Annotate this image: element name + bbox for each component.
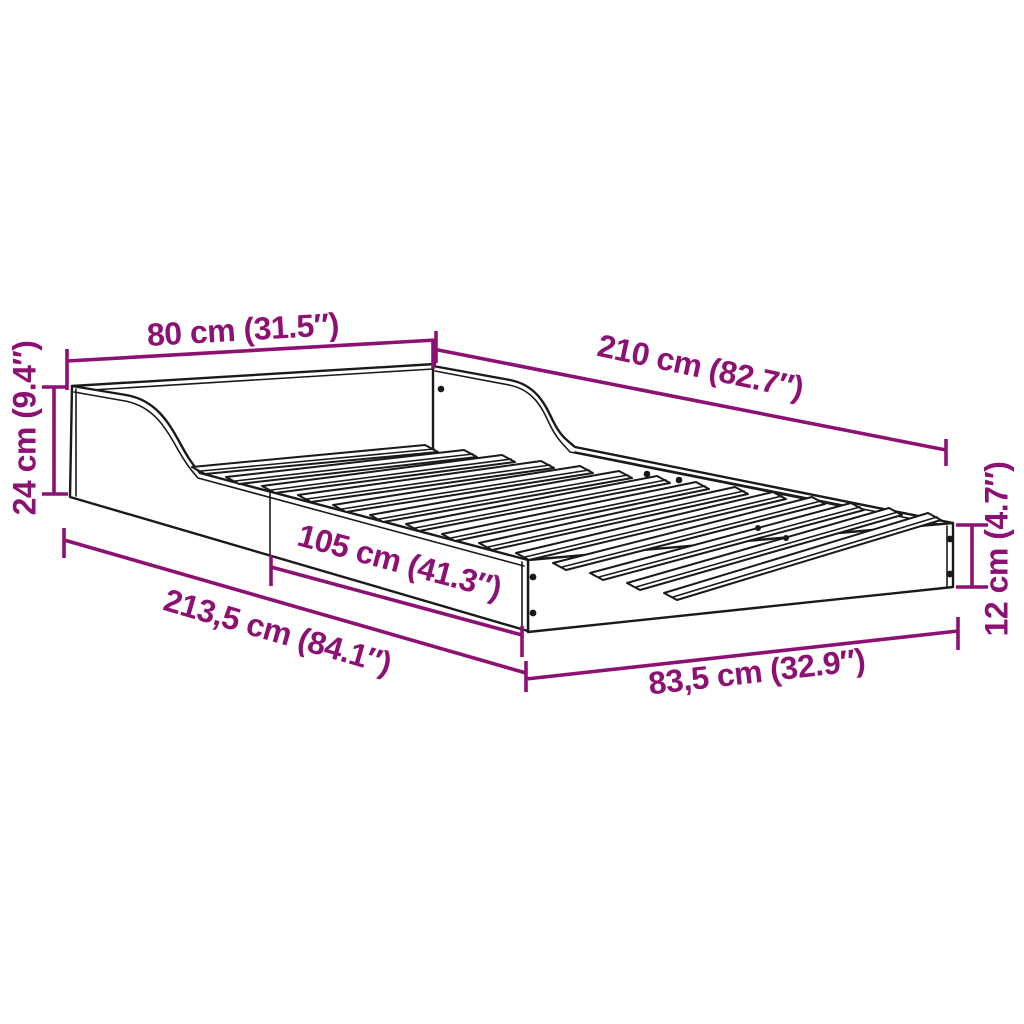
screw-dot — [783, 535, 789, 541]
bed-frame-dimension-diagram: 80 cm (31.5″) 210 cm (82.7″) 24 cm (9.4″… — [0, 0, 1024, 1024]
screw-dot — [530, 574, 537, 581]
dimension-width-top: 80 cm (31.5″) — [67, 306, 436, 390]
dimension-label-foot-width: 83,5 cm (32.9″) — [647, 641, 867, 701]
dimension-label-total-length: 213,5 cm (84.1″) — [160, 582, 396, 682]
screw-dot — [947, 536, 954, 543]
dimension-label-foot-height: 12 cm (4.7″) — [978, 462, 1014, 637]
dimension-foot-width: 83,5 cm (32.9″) — [526, 617, 958, 701]
screw-dot — [530, 610, 537, 617]
screw-dot — [438, 386, 445, 393]
screw-dot — [947, 571, 954, 578]
screw-dot — [755, 525, 761, 531]
dimension-length-top: 210 cm (82.7″) — [433, 327, 946, 466]
dimension-label-head-height: 24 cm (9.4″) — [6, 341, 42, 516]
dimension-foot-height: 12 cm (4.7″) — [956, 462, 1014, 637]
screw-dot — [644, 471, 651, 478]
screw-dot — [676, 477, 683, 484]
dimension-label-length-top: 210 cm (82.7″) — [594, 327, 806, 406]
diagram-canvas: 80 cm (31.5″) 210 cm (82.7″) 24 cm (9.4″… — [0, 0, 1024, 1024]
dimension-head-height: 24 cm (9.4″) — [6, 341, 68, 516]
